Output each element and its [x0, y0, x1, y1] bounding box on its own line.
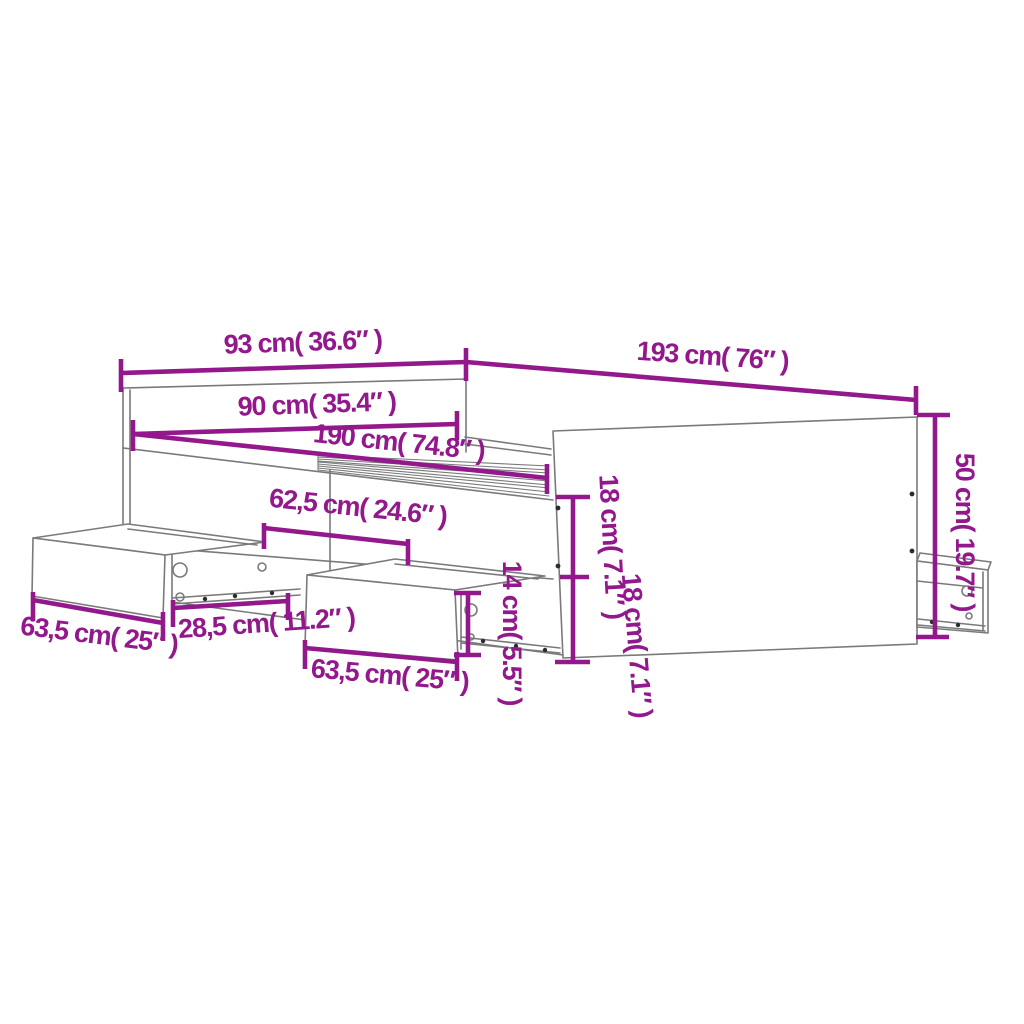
bed-dimension-diagram: 93 cm( 36.6″ ) 193 cm( 76″ ) 90 cm( 35.4…: [0, 0, 1024, 1024]
rail-screw: [956, 623, 960, 627]
cam-hole: [258, 563, 266, 571]
dim-label-left-drawer-width: 63,5 cm( 25″ ): [19, 611, 180, 660]
rail-screw: [481, 639, 485, 643]
dim-label-footboard-height: 50 cm( 19.7″ ): [950, 453, 980, 611]
dim-label-drawer-span: 62,5 cm( 24.6″ ): [268, 483, 449, 531]
dim-label-overall-width: 93 cm( 36.6″ ): [223, 324, 382, 360]
rail-screw: [203, 597, 207, 601]
cam-hole: [966, 613, 972, 619]
footboard-screw: [910, 549, 915, 554]
footboard-screw: [910, 492, 915, 497]
footboard-screw: [556, 564, 561, 569]
rail-screw: [270, 591, 274, 595]
rail-screw: [233, 594, 237, 598]
dim-label-overall-length: 193 cm( 76″ ): [636, 336, 790, 377]
dim-label-inner-width: 90 cm( 35.4″ ): [237, 386, 396, 422]
dim-line-drawer-span: [264, 523, 408, 565]
dim-label-drawer-front-height: 14 cm( 5.5″ ): [497, 561, 527, 706]
rail-screw: [543, 648, 547, 652]
product-dimension-image: 93 cm( 36.6″ ) 193 cm( 76″ ) 90 cm( 35.4…: [0, 0, 1024, 1024]
dim-line-overall-length: [466, 362, 916, 415]
cam-hole: [173, 563, 187, 577]
footboard-screw: [556, 506, 561, 511]
